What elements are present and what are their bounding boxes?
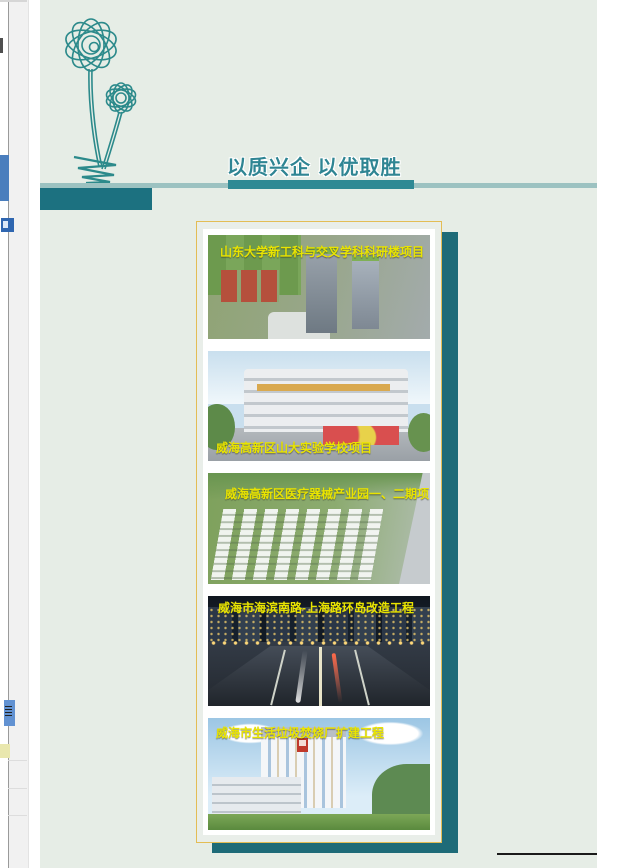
- flower-logo-icon: [44, 5, 174, 185]
- art-street-lights: [208, 641, 430, 645]
- selected-item-glyph: [5, 706, 12, 718]
- project-caption: 威海市海滨南路-上海路环岛改造工程: [218, 601, 414, 615]
- background-folder-icon: [0, 744, 10, 758]
- background-window-panel: [8, 0, 29, 868]
- art-building-rows: [211, 509, 383, 580]
- nav-tab-block[interactable]: [40, 188, 152, 210]
- project-link-shandong-university[interactable]: 山东大学新工科与交叉学科科研楼项目: [208, 235, 430, 339]
- project-link-waste-incineration-plant[interactable]: 威海市生活垃圾焚烧厂扩建工程: [208, 718, 430, 830]
- project-link-shanda-experimental-school[interactable]: 威海高新区山大实验学校项目: [208, 351, 430, 461]
- art-lane-line: [319, 647, 322, 706]
- webpage-body: 以质兴企 以优取胜 山东大学新工科与交叉学科科研楼项目: [40, 0, 597, 868]
- background-list-divider: [8, 760, 27, 761]
- project-caption: 山东大学新工科与交叉学科科研楼项目: [220, 245, 424, 259]
- slogan-underline-bar: [228, 180, 414, 189]
- art-red-courts: [221, 270, 279, 301]
- art-tower: [352, 260, 379, 329]
- background-selection-bar: [0, 155, 9, 201]
- project-caption: 威海市生活垃圾焚烧厂扩建工程: [216, 726, 384, 740]
- background-selected-item: [4, 700, 15, 726]
- art-plant-wing: [212, 777, 301, 815]
- clipped-text-fragment: [0, 38, 3, 53]
- art-lawn: [208, 814, 430, 830]
- background-list-divider: [8, 788, 27, 789]
- background-list-divider: [8, 815, 27, 816]
- art-mountain: [372, 764, 430, 816]
- file-icon-glyph: [3, 221, 8, 228]
- art-red-logo: [297, 738, 308, 752]
- footer-divider-line: [497, 853, 597, 855]
- site-slogan: 以质兴企 以优取胜: [227, 151, 447, 180]
- background-file-icon: [1, 218, 14, 232]
- art-tower: [306, 252, 337, 333]
- background-window-sliver: [0, 0, 27, 868]
- background-window-top-edge: [0, 0, 27, 2]
- art-school-building: [244, 369, 408, 433]
- projects-panel: 山东大学新工科与交叉学科科研楼项目 威海高新区山大实验学校项目: [196, 221, 442, 843]
- project-caption: 威海高新区山大实验学校项目: [216, 441, 372, 455]
- project-link-roundabout-renovation[interactable]: 威海市海滨南路-上海路环岛改造工程: [208, 596, 430, 706]
- project-link-medical-device-park[interactable]: 威海高新区医疗器械产业园一、二期项目: [208, 473, 430, 584]
- art-accent-stripe: [257, 384, 390, 391]
- projects-list: 山东大学新工科与交叉学科科研楼项目 威海高新区山大实验学校项目: [203, 229, 435, 835]
- screen: 以质兴企 以优取胜 山东大学新工科与交叉学科科研楼项目: [0, 0, 635, 868]
- logo-glyph: [299, 740, 306, 746]
- project-caption: 威海高新区医疗器械产业园一、二期项目: [225, 487, 430, 501]
